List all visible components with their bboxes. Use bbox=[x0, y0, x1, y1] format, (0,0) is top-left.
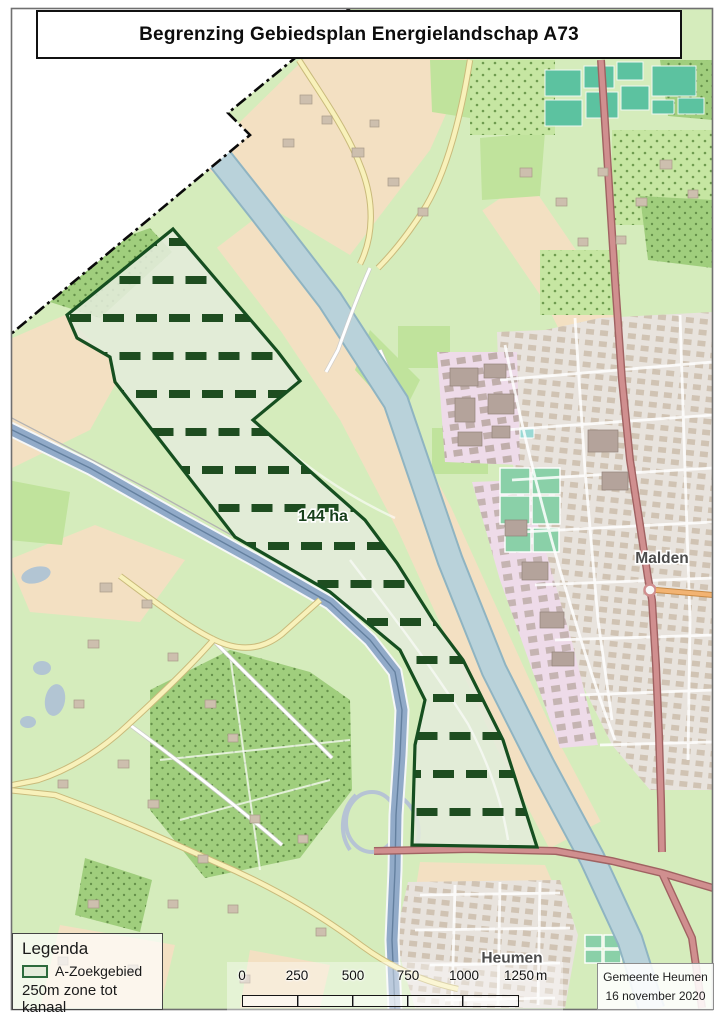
legend-item-zoekgebied: A-Zoekgebied bbox=[22, 963, 162, 979]
map-title: Begrenzing Gebiedsplan Energielandschap … bbox=[139, 24, 579, 46]
legend-title: Legenda bbox=[22, 939, 162, 959]
area-label: 144 ha bbox=[298, 508, 348, 525]
scalebar: 0 250 500 750 1000 1250 m bbox=[227, 962, 563, 1012]
legend-note: 250m zone tot kanaal bbox=[22, 982, 162, 1016]
map-sheet: 144 ha Malden Heumen Begrenzing Gebiedsp… bbox=[0, 0, 725, 1024]
scalebar-segment bbox=[407, 995, 464, 1007]
scalebar-tick-0: 0 bbox=[218, 968, 266, 983]
scalebar-segment bbox=[352, 995, 409, 1007]
scalebar-segments bbox=[242, 995, 519, 1007]
attribution-box: Gemeente Heumen 16 november 2020 bbox=[597, 963, 714, 1010]
scalebar-segment bbox=[297, 995, 354, 1007]
roundabout bbox=[645, 585, 656, 596]
attribution-date: 16 november 2020 bbox=[598, 987, 713, 1006]
map-canvas: 144 ha Malden Heumen bbox=[0, 0, 725, 1024]
legend-item-label: A-Zoekgebied bbox=[55, 963, 142, 979]
map-title-box: Begrenzing Gebiedsplan Energielandschap … bbox=[36, 10, 682, 59]
legend-panel: Legenda A-Zoekgebied 250m zone tot kanaa… bbox=[12, 933, 163, 1010]
scalebar-segment bbox=[242, 995, 299, 1007]
scalebar-tick-2: 500 bbox=[329, 968, 377, 983]
attribution-author: Gemeente Heumen bbox=[598, 968, 713, 987]
town-label-malden: Malden bbox=[635, 550, 688, 567]
scalebar-tick-4: 1000 bbox=[440, 968, 488, 983]
scalebar-unit: m bbox=[536, 968, 547, 983]
scalebar-tick-1: 250 bbox=[273, 968, 321, 983]
zoekgebied-swatch bbox=[22, 965, 48, 978]
scalebar-tick-3: 750 bbox=[384, 968, 432, 983]
scalebar-segment bbox=[462, 995, 519, 1007]
